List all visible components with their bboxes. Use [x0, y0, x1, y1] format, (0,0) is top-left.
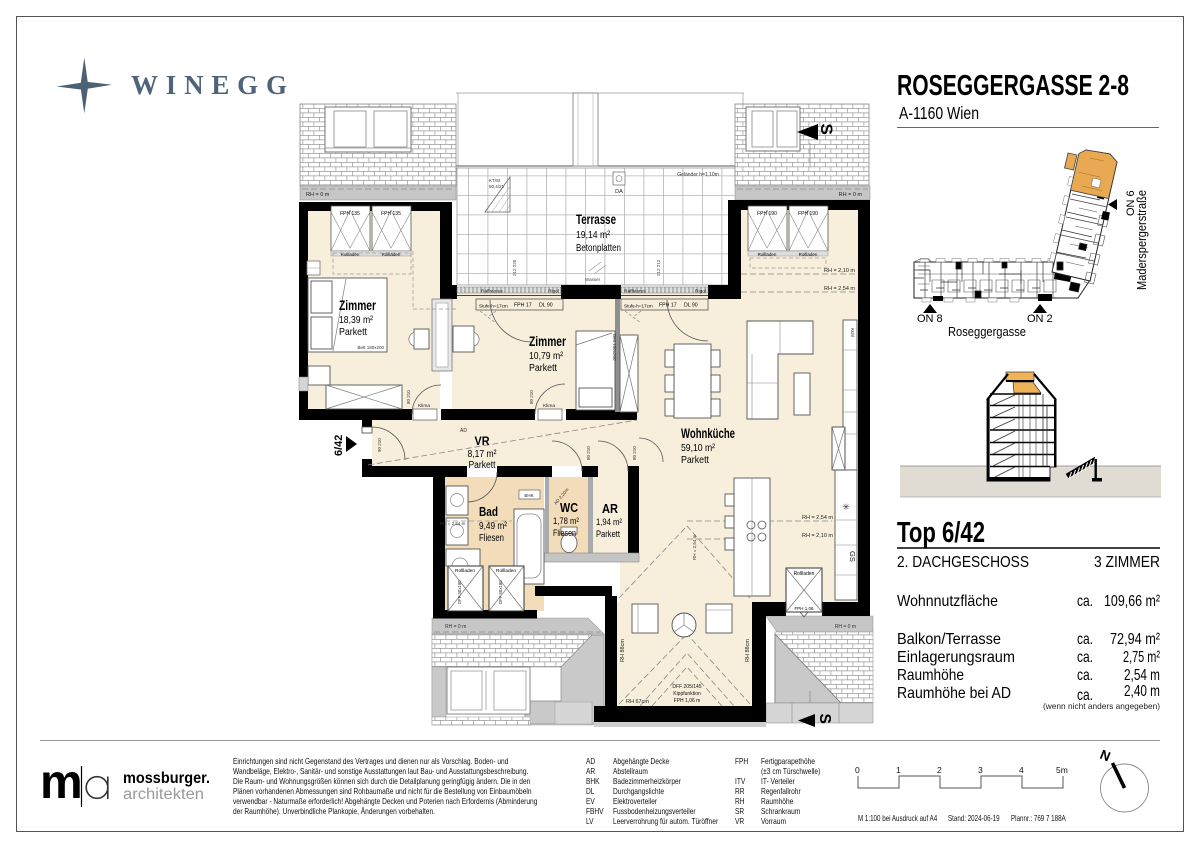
svg-text:8,17 m²: 8,17 m² — [468, 449, 498, 460]
svg-text:Regenfallrohr: Regenfallrohr — [761, 786, 801, 796]
svg-text:RH = 2,10 m: RH = 2,10 m — [824, 268, 855, 274]
svg-text:Fliesen: Fliesen — [479, 533, 504, 544]
svg-text:212 212: 212 212 — [656, 259, 661, 276]
svg-text:90 210: 90 210 — [377, 438, 382, 452]
svg-text:1,94 m²: 1,94 m² — [596, 517, 622, 528]
svg-text:RH = 2,54 m: RH = 2,54 m — [440, 521, 466, 526]
svg-text:Stand: 2024-06-19: Stand: 2024-06-19 — [948, 814, 1000, 823]
svg-text:AR: AR — [602, 502, 618, 516]
svg-text:mossburger.: mossburger. — [123, 770, 210, 787]
svg-text:RH 88cm: RH 88cm — [745, 639, 751, 662]
svg-text:Elektroverteiler: Elektroverteiler — [613, 796, 657, 806]
svg-text:Badezimmerheizkörper: Badezimmerheizkörper — [613, 776, 681, 786]
svg-text:LV: LV — [586, 816, 594, 826]
svg-text:Raumhöhe bei AD: Raumhöhe bei AD — [897, 685, 1011, 702]
svg-text:Rollladen: Rollladen — [794, 571, 815, 577]
svg-text:architekten: architekten — [123, 786, 204, 803]
svg-text:RH = 0 m: RH = 0 m — [835, 624, 856, 630]
svg-text:18,39 m²: 18,39 m² — [339, 314, 373, 326]
svg-text:S: S — [817, 124, 836, 135]
svg-text:Raumhöhe: Raumhöhe — [897, 667, 964, 684]
svg-text:Klima: Klima — [418, 403, 430, 409]
svg-text:RR: RR — [735, 786, 745, 796]
svg-text:FPH 1,06 m: FPH 1,06 m — [674, 698, 701, 704]
svg-text:80 210: 80 210 — [586, 446, 591, 460]
svg-text:Stufe-h=17cm: Stufe-h=17cm — [624, 304, 653, 309]
svg-text:80 210: 80 210 — [632, 446, 637, 460]
svg-text:DL 90: DL 90 — [539, 303, 553, 309]
svg-text:ON 8: ON 8 — [917, 313, 943, 325]
svg-text:DFF 90x180: DFF 90x180 — [457, 580, 462, 604]
svg-text:212 220: 212 220 — [512, 259, 517, 276]
svg-text:Bad: Bad — [479, 505, 498, 519]
svg-text:BHK: BHK — [524, 493, 533, 498]
svg-text:A-1160 Wien: A-1160 Wien — [899, 103, 979, 123]
svg-text:KT/St: KT/St — [489, 178, 501, 183]
svg-text:FPH 1,06: FPH 1,06 — [794, 606, 814, 611]
svg-text:2,40 m: 2,40 m — [1124, 683, 1160, 700]
svg-text:Parkett: Parkett — [469, 460, 496, 471]
svg-text:2,75 m²: 2,75 m² — [1123, 649, 1160, 666]
svg-text:S: S — [816, 714, 833, 724]
svg-text:Rollladen: Rollladen — [455, 568, 475, 574]
svg-text:Abstellraum: Abstellraum — [613, 766, 648, 776]
svg-text:2,54 m: 2,54 m — [1124, 667, 1160, 684]
svg-text:Wasser: Wasser — [585, 277, 601, 282]
svg-text:Schrankraum: Schrankraum — [761, 806, 800, 816]
svg-text:ca.: ca. — [1077, 649, 1093, 666]
svg-text:6/42: 6/42 — [333, 435, 345, 456]
svg-text:WINEGG: WINEGG — [131, 70, 294, 100]
svg-text:RH = 0 m: RH = 0 m — [445, 624, 466, 630]
svg-text:Rollladen: Rollladen — [799, 252, 818, 257]
svg-text:IT- Verteiler: IT- Verteiler — [761, 776, 795, 786]
svg-text:AD: AD — [460, 428, 467, 434]
svg-text:M 1:100 bei Ausdruck auf A4: M 1:100 bei Ausdruck auf A4 — [858, 814, 937, 823]
svg-text:Klima: Klima — [543, 403, 555, 409]
svg-text:DL: DL — [586, 786, 595, 796]
svg-text:Rollladen: Rollladen — [496, 568, 516, 574]
svg-text:Balkon/Terrasse: Balkon/Terrasse — [897, 631, 1001, 648]
svg-text:Top 6/42: Top 6/42 — [897, 517, 985, 549]
svg-text:RH = 0 m: RH = 0 m — [306, 192, 330, 198]
svg-text:Parkett: Parkett — [339, 326, 367, 338]
svg-text:109,66 m²: 109,66 m² — [1104, 593, 1161, 610]
svg-text:Wohnnutzfläche: Wohnnutzfläche — [897, 593, 998, 610]
svg-text:AR: AR — [586, 766, 596, 776]
svg-text:Maderspergerstraße: Maderspergerstraße — [1134, 190, 1149, 290]
svg-text:Zimmer: Zimmer — [339, 298, 377, 313]
svg-text:ROSEGGERGASSE 2-8: ROSEGGERGASSE 2-8 — [897, 70, 1129, 102]
svg-text:der Raumhöhe). Unverbindliche: der Raumhöhe). Unverbindliche Plankopie,… — [233, 806, 435, 816]
svg-text:Kippfunktion: Kippfunktion — [673, 691, 701, 697]
svg-text:ca.: ca. — [1077, 667, 1093, 684]
svg-text:DFF 205/145: DFF 205/145 — [672, 684, 701, 690]
svg-text:Abgehängte Decke: Abgehängte Decke — [613, 756, 669, 766]
svg-text:9,49 m²: 9,49 m² — [479, 521, 508, 532]
svg-text:Parkett: Parkett — [529, 362, 557, 374]
svg-text:VR: VR — [735, 816, 745, 826]
svg-text:RH = 2,54 m: RH = 2,54 m — [824, 286, 855, 292]
svg-text:ON 2: ON 2 — [1027, 313, 1053, 325]
svg-text:Wandbeläge, Elektro-, Sanitär-: Wandbeläge, Elektro-, Sanitär- und sonst… — [233, 766, 528, 776]
svg-text:Rollladen: Rollladen — [758, 252, 777, 257]
svg-text:RH: RH — [735, 796, 745, 806]
svg-text:FBHV: FBHV — [586, 806, 604, 816]
svg-text:DFF 90x180: DFF 90x180 — [498, 580, 503, 604]
svg-text:Leerverrohrung für autom. Türö: Leerverrohrung für autom. Türöffner — [613, 816, 718, 826]
svg-text:RH 67cm: RH 67cm — [626, 699, 649, 705]
svg-text:FPH: FPH — [735, 756, 748, 766]
svg-text:Bett 100x200: Bett 100x200 — [612, 334, 617, 361]
svg-text:80 210: 80 210 — [406, 390, 411, 404]
svg-text:Raumhöhe: Raumhöhe — [761, 796, 793, 806]
svg-text:verwendbar - Naturmaße erforde: verwendbar - Naturmaße erforderlich! Abg… — [233, 796, 537, 806]
svg-text:1,78 m²: 1,78 m² — [553, 516, 579, 527]
svg-text:5m: 5m — [1056, 765, 1068, 775]
svg-text:FPH 17: FPH 17 — [514, 303, 532, 309]
svg-text:2: 2 — [937, 765, 942, 775]
svg-text:RH = 2,10 m: RH = 2,10 m — [802, 533, 833, 539]
svg-text:Betonplatten: Betonplatten — [576, 242, 621, 254]
svg-text:3: 3 — [978, 765, 983, 775]
svg-text:SR: SR — [735, 806, 745, 816]
svg-text:✳: ✳ — [842, 502, 850, 512]
svg-text:ca.: ca. — [1077, 593, 1093, 610]
svg-text:DA: DA — [615, 189, 623, 195]
svg-text:1: 1 — [896, 765, 901, 775]
svg-text:Die Raum- und Wohnungsgrößen k: Die Raum- und Wohnungsgrößen können sich… — [233, 776, 530, 786]
svg-text:Zimmer: Zimmer — [529, 334, 567, 349]
svg-text:m: m — [40, 756, 83, 809]
svg-text:Bett 180x200: Bett 180x200 — [357, 345, 384, 350]
svg-text:Rigol: Rigol — [695, 289, 706, 295]
svg-text:FPH 135: FPH 135 — [340, 211, 360, 217]
svg-text:Fliesen: Fliesen — [553, 528, 576, 539]
svg-text:Einlagerungsraum: Einlagerungsraum — [897, 649, 1015, 666]
svg-text:WC: WC — [560, 501, 578, 515]
svg-text:Rigol: Rigol — [548, 289, 559, 295]
svg-text:Wohnküche: Wohnküche — [681, 426, 735, 441]
svg-text:Vorraum: Vorraum — [761, 816, 786, 826]
svg-text:Rollladen: Rollladen — [341, 252, 360, 257]
svg-text:Parkett: Parkett — [681, 454, 709, 466]
svg-text:50,4/21: 50,4/21 — [489, 184, 505, 189]
svg-text:Terrasse: Terrasse — [576, 212, 616, 227]
svg-text:2. DACHGESCHOSS: 2. DACHGESCHOSS — [897, 554, 1029, 571]
svg-text:DL 90: DL 90 — [684, 303, 698, 309]
svg-text:Rollladen: Rollladen — [382, 252, 401, 257]
svg-text:AD: AD — [586, 756, 596, 766]
svg-text:EV: EV — [586, 796, 596, 806]
svg-text:Plannr.: 769 7 188A: Plannr.: 769 7 188A — [1011, 814, 1066, 823]
svg-text:Plänen vorhandenen Abmessungen: Plänen vorhandenen Abmessungen sind Rohb… — [233, 786, 532, 796]
svg-text:RH = 0 m: RH = 0 m — [839, 192, 863, 198]
svg-text:RH = 2,54 m: RH = 2,54 m — [692, 534, 697, 560]
svg-text:4: 4 — [1019, 765, 1024, 775]
svg-text:80 210: 80 210 — [529, 390, 534, 404]
svg-text:RH 88cm: RH 88cm — [620, 639, 626, 662]
svg-text:Raffstores: Raffstores — [624, 289, 646, 295]
svg-text:Parkett: Parkett — [596, 529, 620, 540]
svg-text:Roseggergasse: Roseggergasse — [948, 324, 1026, 339]
svg-text:Stufe-h=17cm: Stufe-h=17cm — [479, 304, 508, 309]
svg-text:0: 0 — [855, 765, 860, 775]
svg-text:Einrichtungen sind nicht Gegen: Einrichtungen sind nicht Gegenstand des … — [233, 756, 508, 766]
svg-text:19,14 m²: 19,14 m² — [576, 229, 610, 241]
svg-text:RH = 2,54 m: RH = 2,54 m — [802, 515, 833, 521]
svg-text:ca.: ca. — [1077, 631, 1093, 648]
svg-text:(±3 cm Türschwelle): (±3 cm Türschwelle) — [761, 766, 821, 776]
svg-text:FPH 135: FPH 135 — [381, 211, 401, 217]
svg-text:(wenn nicht anders angegeben): (wenn nicht anders angegeben) — [1043, 701, 1160, 711]
svg-text:3 ZIMMER: 3 ZIMMER — [1094, 554, 1160, 571]
svg-text:GS: GS — [848, 551, 857, 562]
svg-text:Fussbodenheizungsverteiler: Fussbodenheizungsverteiler — [613, 806, 696, 816]
svg-text:FPH 190: FPH 190 — [757, 211, 777, 217]
svg-text:BHK: BHK — [586, 776, 600, 786]
svg-text:Kühl: Kühl — [850, 328, 855, 337]
svg-text:72,94 m²: 72,94 m² — [1110, 631, 1161, 648]
svg-text:Fertigparapethöhe: Fertigparapethöhe — [761, 756, 815, 766]
svg-text:10,79 m²: 10,79 m² — [529, 350, 563, 362]
svg-text:59,10 m²: 59,10 m² — [681, 442, 715, 454]
svg-text:FPH 190: FPH 190 — [798, 211, 818, 217]
svg-text:Geländer h=1,10m: Geländer h=1,10m — [677, 172, 719, 178]
svg-text:ITV: ITV — [735, 776, 746, 786]
svg-text:Durchgangslichte: Durchgangslichte — [613, 786, 664, 796]
svg-text:Raffstores: Raffstores — [481, 289, 503, 295]
svg-text:VR: VR — [475, 434, 490, 448]
